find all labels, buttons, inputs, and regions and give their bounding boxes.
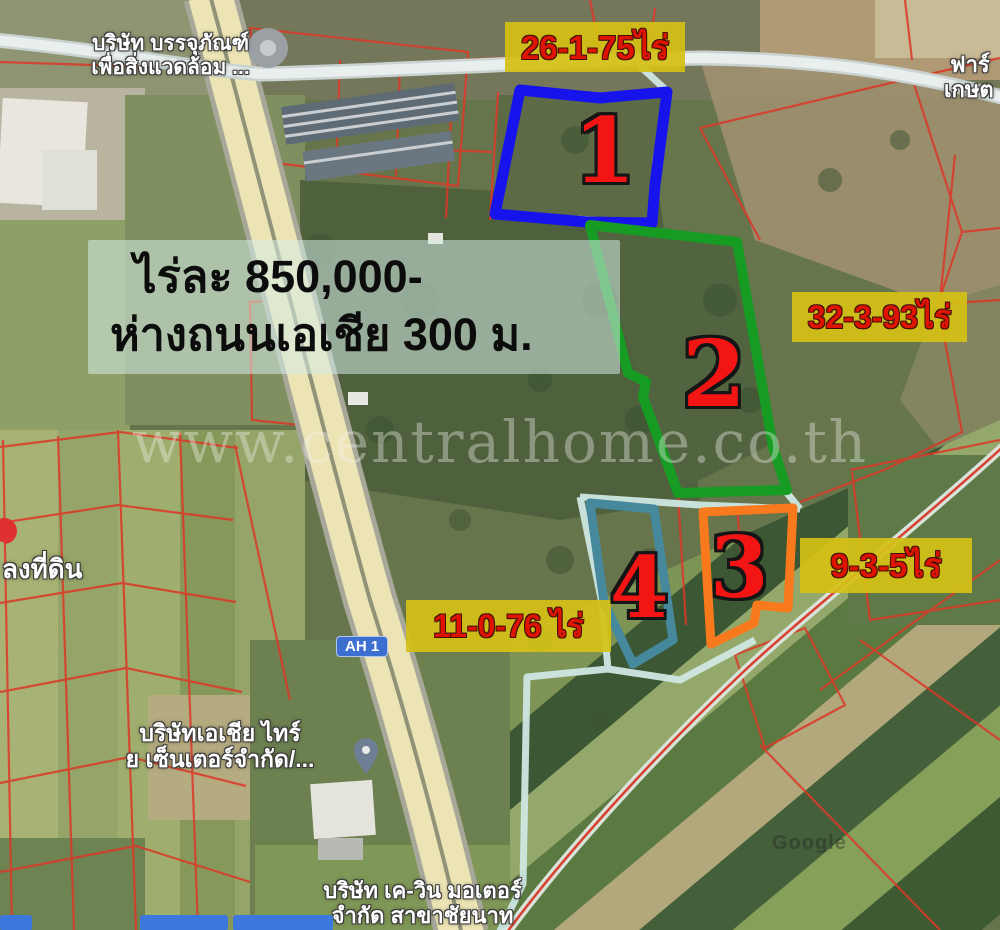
satellite-map: บริษัท บรรจุภัณฑ์ เพื่อสิ่งแวดล้อม ... ฟ… (0, 0, 1000, 930)
label-line: ฟาร์ (950, 52, 1000, 77)
bottom-label-chip[interactable] (0, 915, 32, 930)
label-line: จำกัด สาขาชัยนาท (295, 903, 550, 928)
imagery-credit: Google (772, 832, 847, 855)
road-shield-ah1: AH 1 (336, 636, 388, 657)
label-line: ย เซ็นเตอร์จำกัด/... (80, 746, 360, 772)
label-line: บริษัท บรรจุภัณฑ์ (58, 32, 283, 56)
place-label-land[interactable]: ลงที่ดิน (2, 555, 82, 585)
parcel-number-2: 2 (682, 328, 746, 420)
bottom-label-chip[interactable] (233, 915, 333, 930)
label-line: บริษัท เค-วิน มอเตอร์ (295, 878, 550, 903)
price-line: ไร่ละ 850,000- (110, 248, 600, 306)
label-line: เพื่อสิ่งแวดล้อม ... (58, 56, 283, 80)
parcel-number-3: 3 (710, 526, 768, 610)
distance-line: ห่างถนนเอเชีย 300 ม. (110, 306, 600, 364)
place-label-farm[interactable]: ฟาร์ เกษต (950, 52, 1000, 103)
place-label-kwin-motor[interactable]: บริษัท เค-วิน มอเตอร์ จำกัด สาขาชัยนาท (295, 878, 550, 929)
area-badge-parcel-2: 32-3-93ไร่ (792, 292, 967, 342)
parcel-number-1: 1 (573, 106, 636, 196)
area-badge-parcel-3: 9-3-5ไร่ (800, 538, 972, 593)
label-line: บริษัทเอเชีย ไทร์ (80, 720, 360, 746)
site-watermark: www.centralhome.co.th (0, 408, 1000, 476)
area-badge-parcel-1: 26-1-75ไร่ (505, 22, 685, 72)
place-label-asia-tire[interactable]: บริษัทเอเชีย ไทร์ ย เซ็นเตอร์จำกัด/... (80, 720, 360, 773)
bottom-label-chip[interactable] (140, 915, 228, 930)
parcel-number-4: 4 (610, 546, 668, 630)
area-badge-parcel-4: 11-0-76 ไร่ (406, 600, 611, 652)
price-banner: ไร่ละ 850,000- ห่างถนนเอเชีย 300 ม. (88, 240, 620, 374)
label-line: เกษต (944, 77, 1000, 102)
place-label-packaging-company[interactable]: บริษัท บรรจุภัณฑ์ เพื่อสิ่งแวดล้อม ... (58, 32, 283, 80)
